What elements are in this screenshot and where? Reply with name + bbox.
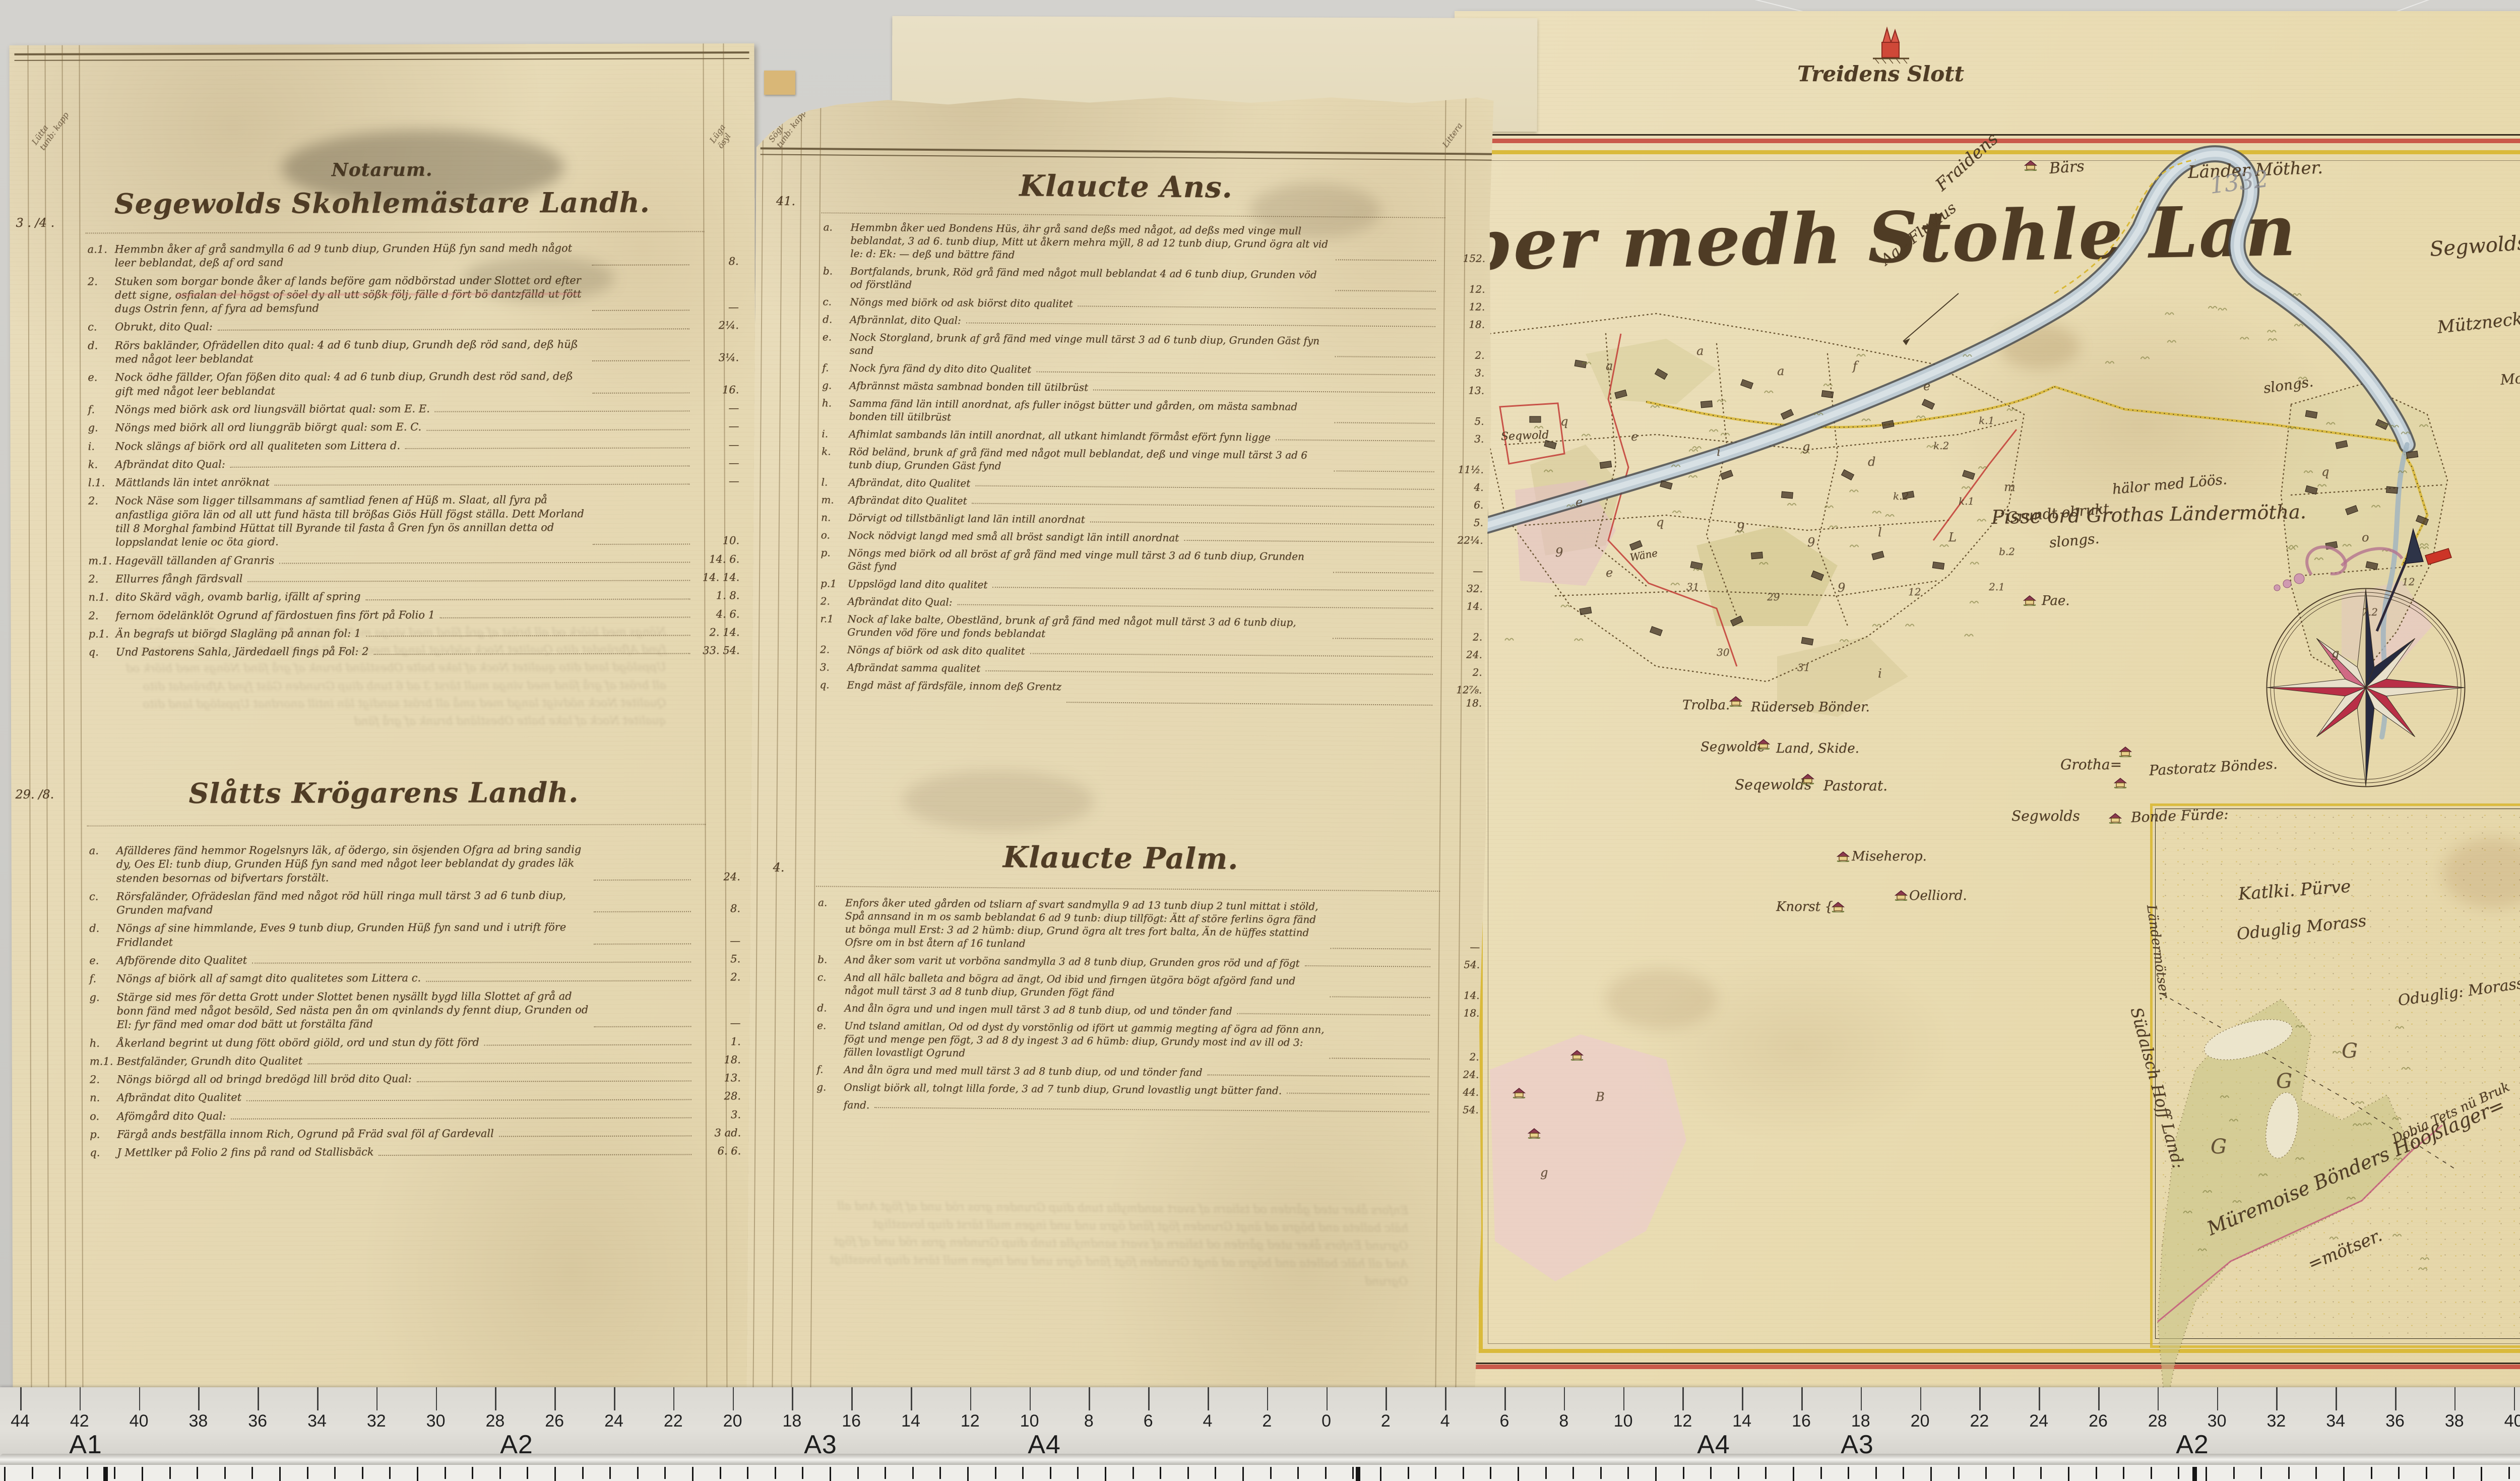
- entry-text: Mättlands län intet anröknat: [115, 476, 270, 490]
- ruler-number: 24: [2029, 1411, 2048, 1431]
- entry-text: Onsligt biörk all, tolngt lilla forde, 3…: [844, 1081, 1282, 1097]
- entry-text: Dörvigt od tillstbänligt land län intill…: [848, 511, 1085, 526]
- map-place-label: Wäne: [1629, 547, 1659, 564]
- ruler-tick: [317, 1387, 319, 1410]
- dotted-leader: [252, 962, 691, 964]
- parcel-letter: i: [1717, 445, 1721, 459]
- entry-text: Obrukt, dito Qual:: [115, 320, 213, 334]
- dotted-leader: [593, 392, 690, 394]
- entry-value: 8.: [696, 902, 743, 916]
- ruler2-tick: [554, 1467, 556, 1481]
- ruler-number: 16: [842, 1411, 861, 1431]
- dotted-leader: [426, 980, 691, 981]
- entry-text: Engd mäst af färdsfäle, innom deß Grentz: [847, 678, 1061, 693]
- ruler-tick: [376, 1387, 378, 1410]
- map-place-label: Aa - Fluvius: [1877, 199, 1960, 269]
- parcel-letter: 31: [1797, 661, 1810, 673]
- ruler2-tick: [2371, 1467, 2372, 1479]
- ruler-number: 40: [2504, 1411, 2520, 1431]
- ruler2-tick: [720, 1467, 721, 1479]
- ruler2-tick: [2068, 1467, 2069, 1481]
- ruler-number: 20: [723, 1411, 742, 1431]
- middle-section1-heading: Klaucte Ans.: [756, 166, 1496, 207]
- ledger-row: g.Onsligt biörk all, tolngt lilla forde,…: [814, 1080, 1482, 1098]
- ruler2-tick: [1738, 1467, 1739, 1479]
- house-icon: [2114, 777, 2127, 788]
- entry-text: Nock Näse som ligger tillsammans af samt…: [115, 493, 588, 549]
- dotted-leader: [985, 670, 1432, 675]
- ink-blot: [902, 770, 1094, 832]
- dotted-leader: [1335, 422, 1435, 424]
- ledger-row: e.Nock Storgland, brunk af grå fänd med …: [821, 330, 1488, 361]
- ruler-number: 26: [545, 1411, 564, 1431]
- entry-text: Än begrafs ut biörgd Slagläng på annan f…: [115, 627, 361, 641]
- entry-letter: f.: [814, 1063, 844, 1076]
- entry-value: 22¼.: [1439, 533, 1486, 547]
- dotted-leader: [426, 429, 689, 430]
- ruler2-tick: [2178, 1467, 2179, 1479]
- ruler-number: 30: [426, 1411, 446, 1431]
- entry-letter: e.: [815, 1019, 844, 1032]
- ruler-tick: [2395, 1387, 2397, 1410]
- ruler2-tick: [1985, 1467, 1987, 1479]
- entry-letter: c.: [821, 295, 850, 308]
- dotted-leader: [972, 503, 1434, 508]
- entry-text: Rörs bakländer, Ofrädellen dito qual: 4 …: [115, 338, 588, 366]
- ruler-tick: [436, 1387, 437, 1410]
- entry-letter: e.: [87, 954, 116, 967]
- house-icon: [1513, 1087, 1526, 1098]
- dotted-leader: [218, 328, 689, 330]
- ruler2-tick: [637, 1467, 639, 1479]
- entry-value: 24.: [1434, 1068, 1482, 1081]
- entry-letter: m.: [819, 493, 848, 506]
- entry-value: 14. 14.: [695, 571, 742, 585]
- entry-text: Färgå ands bestfälla innom Rich, Ogrund …: [117, 1127, 494, 1141]
- dotted-leader: [1030, 653, 1433, 657]
- ruler-tick: [1327, 1387, 1328, 1410]
- ledger-row: a.Enfors åker uted gården od tsliarn af …: [815, 896, 1483, 953]
- dotted-leader: [246, 1099, 691, 1101]
- entry-value: 18.: [1440, 318, 1488, 331]
- ruler-number: 44: [11, 1411, 30, 1431]
- ledger-row: a.Afällderes fänd hemmor Rogelsnyrs läk,…: [87, 842, 743, 885]
- map-place-label: Bärs: [2049, 157, 2085, 177]
- ledger-row: l.Afbrändat, dito Qualitet4.: [819, 475, 1486, 493]
- dotted-leader: [874, 1107, 1429, 1113]
- entry-text: And åln ögra und med mull tärst 3 ad 8 t…: [844, 1063, 1202, 1079]
- entry-letter: n.1.: [86, 591, 115, 604]
- ruler2-thick-tick: [2192, 1467, 2197, 1481]
- ruler-tick: [1920, 1387, 1922, 1410]
- paper-fragment: [764, 71, 795, 95]
- map-place-label: Seqwold: [1501, 429, 1549, 443]
- ruler2-tick: [445, 1467, 446, 1479]
- parcel-letter: k.1: [1959, 495, 1974, 507]
- dotted-leader: [1335, 356, 1435, 358]
- ruler2-tick: [1627, 1467, 1629, 1479]
- ruler-tick: [733, 1387, 734, 1410]
- map-place-label: Monser.: [2500, 367, 2520, 388]
- parcel-letter: a: [1606, 359, 1613, 373]
- house-icon: [2109, 813, 2122, 824]
- entry-value: 2.: [1438, 630, 1485, 644]
- ruler2-tick: [1132, 1467, 1134, 1479]
- map-place-label: Miseherop.: [1852, 849, 1927, 864]
- entry-value: —: [695, 456, 742, 470]
- ruler2-tick: [334, 1467, 336, 1479]
- entry-value: 2.: [1440, 348, 1487, 362]
- entry-value: 18.: [697, 1053, 744, 1067]
- ruler2-tick: [114, 1467, 115, 1479]
- ledger-row: g.Nöngs med biörk all ord liunggräb biör…: [86, 419, 742, 435]
- entry-text: Samma fänd län intill anordnat, afs full…: [849, 397, 1330, 426]
- entry-value: 44.: [1434, 1085, 1482, 1099]
- dotted-leader: [279, 562, 690, 564]
- ruler-tick: [2098, 1387, 2100, 1410]
- ruler-number: 18: [1851, 1411, 1870, 1431]
- ledger-row: n.Afbrändat dito Qualitet28.: [88, 1090, 744, 1105]
- entry-text: Uppslögd land dito qualitet: [848, 577, 988, 591]
- entry-value: 24.: [1438, 648, 1485, 661]
- dotted-leader: [1276, 439, 1434, 441]
- ruler-tick: [80, 1387, 81, 1410]
- parcel-letter: 9: [1807, 535, 1815, 549]
- map-place-label: Pae.: [2042, 593, 2069, 608]
- dotted-leader: [594, 1026, 691, 1027]
- dotted-leader: [1333, 572, 1433, 574]
- ruler-number: 0: [1321, 1411, 1331, 1431]
- ruler-tick: [1445, 1387, 1446, 1410]
- dotted-leader: [366, 635, 690, 637]
- house-icon: [1729, 696, 1742, 707]
- entry-value: —: [695, 300, 742, 315]
- entry-letter: d.: [86, 339, 115, 352]
- entry-text: Afbrändat dito Qual:: [115, 458, 225, 472]
- map-place-label: slongs.: [2049, 530, 2100, 551]
- ruler2-tick: [32, 1467, 33, 1479]
- entry-letter: o.: [819, 528, 848, 541]
- entry-letter: l.1.: [86, 476, 115, 490]
- ruler-tick: [258, 1387, 259, 1410]
- parcel-letter: q: [1560, 414, 1568, 428]
- house-icon: [1832, 901, 1845, 912]
- ruler2-tick: [1077, 1467, 1079, 1479]
- dotted-leader: [1237, 1013, 1430, 1016]
- ledger-row: p.Färgå ands bestfälla innom Rich, Ogrun…: [88, 1126, 744, 1142]
- entry-value: —: [1438, 564, 1486, 578]
- entry-letter: a.1.: [85, 242, 114, 256]
- entry-letter: 2.: [88, 1073, 117, 1087]
- entry-letter: b.: [815, 953, 845, 966]
- dotted-leader: [417, 1081, 691, 1082]
- entry-text: fand.: [844, 1098, 870, 1112]
- entry-letter: f.: [820, 361, 849, 374]
- parcel-letter: b.2: [1999, 545, 2015, 558]
- ruler-number: 34: [307, 1411, 327, 1431]
- entry-value: 54.: [1435, 958, 1483, 971]
- map-place-label: Seqewolds: [1735, 776, 1811, 793]
- entry-text: Afällderes fänd hemmor Rogelsnyrs läk, a…: [116, 843, 589, 885]
- entry-letter: r.1: [818, 612, 847, 625]
- ledger-row: a.Hemmbn åker ued Bondens Hüs, ähr grå s…: [821, 220, 1489, 265]
- ruler-tick: [1861, 1387, 1862, 1410]
- entry-text: Afbrändat samma qualitet: [847, 661, 981, 675]
- ruler2-tick: [1352, 1467, 1354, 1479]
- map-place-label: Oelliord.: [1909, 888, 1967, 903]
- ruler-number: 2: [1381, 1411, 1391, 1431]
- ruler2-tick: [499, 1467, 501, 1479]
- ruler-tick: [1564, 1387, 1565, 1410]
- entry-text: Nöngs med biörk od all bröst af grå fänd…: [848, 546, 1329, 576]
- secondary-ruler: [0, 1465, 2520, 1481]
- ledger-row: m.1.Hageväll tällanden af Granris14. 6.: [86, 552, 742, 568]
- entry-text: dito Skärd vägh, ovamb barlig, ifällt af…: [115, 590, 360, 604]
- ledger-row: n.Dörvigt od tillstbänligt land län inti…: [819, 511, 1486, 529]
- map-place-label: Segwolde: [1700, 739, 1765, 755]
- entry-text: Enfors åker uted gården od tsliarn af sv…: [845, 896, 1326, 952]
- entry-letter: 2.: [86, 275, 115, 288]
- ledger-row: 2.Nöngs af biörk od ask dito qualitet24.: [818, 643, 1485, 661]
- entry-text: Nöngs af biörk od ask dito qualitet: [847, 643, 1025, 658]
- dotted-leader: [1093, 390, 1435, 393]
- entry-letter: e.: [86, 371, 115, 385]
- entry-value: —: [695, 401, 742, 415]
- entry-text: Und tsland amitlan, Od od dyst dy vorstö…: [844, 1019, 1325, 1062]
- ruler2-tick: [1683, 1467, 1684, 1479]
- ledger-row: c.Obrukt, dito Qual:2¼.: [86, 319, 742, 335]
- entry-value: —: [695, 438, 742, 452]
- left-section2-heading: Slåtts Krögarens Landh.: [11, 775, 756, 810]
- ruler-number: 10: [1614, 1411, 1633, 1431]
- entry-value: 54.: [1434, 1103, 1482, 1117]
- ruler2-tick: [2040, 1467, 2042, 1479]
- ledger-row: g.Afbrännst mästa sambnad bonden till üt…: [820, 379, 1487, 397]
- ledger-row: q.Engd mäst af färdsfäle, innom deß Gren…: [817, 678, 1485, 709]
- entry-text: Nöngs med biörk od ask biörst dito quali…: [850, 295, 1073, 310]
- entry-letter: g.: [86, 421, 115, 435]
- entry-value: 2¼.: [695, 319, 742, 333]
- ruler-number: 22: [664, 1411, 683, 1431]
- entry-value: 12.: [1440, 300, 1488, 314]
- ruler-tick: [1623, 1387, 1625, 1410]
- entry-letter: g.: [820, 379, 849, 392]
- ledger-entries-3: a.Hemmbn åker ued Bondens Hüs, ähr grå s…: [817, 220, 1489, 714]
- ledger-row: c.Nöngs med biörk od ask biörst dito qua…: [821, 295, 1488, 313]
- ruler-tick: [1385, 1387, 1387, 1410]
- ruler-number: 12: [961, 1411, 980, 1431]
- entry-value: 5.: [1439, 516, 1486, 529]
- ruler-number: 30: [2208, 1411, 2227, 1431]
- ruler-number: 28: [2148, 1411, 2167, 1431]
- ruler-number: 6: [1144, 1411, 1153, 1431]
- entry-letter: d.: [87, 922, 116, 936]
- entry-value: 12⅞. 18.: [1437, 683, 1485, 710]
- dotted-leader: [405, 447, 690, 449]
- entry-letter: q.: [817, 678, 847, 691]
- house-icon: [2023, 595, 2036, 606]
- ruler2-thick-tick: [103, 1467, 108, 1481]
- ruler-tick: [673, 1387, 675, 1410]
- ruler2-tick: [1655, 1467, 1657, 1481]
- ruler-tick: [792, 1387, 793, 1410]
- map-place-label: Südalsch Hoff Land:: [2127, 1005, 2188, 1170]
- map-place-label: Pastorat.: [1823, 777, 1887, 794]
- ledger-row: f.And åln ögra und med mull tärst 3 ad 8…: [814, 1063, 1482, 1081]
- ruler-number: 6: [1500, 1411, 1509, 1431]
- entry-text: Afbförende dito Qualitet: [116, 954, 247, 968]
- parcel-letter: 12: [1908, 586, 1921, 598]
- ruler2-tick: [857, 1467, 859, 1479]
- parcel-letter: g: [2332, 646, 2339, 660]
- ruler2-tick: [279, 1467, 281, 1481]
- entry-value: 28.: [697, 1090, 744, 1104]
- dotted-leader: [992, 587, 1433, 591]
- ledger-row: d.And åln ögra und und ingen mull tärst …: [815, 1001, 1482, 1019]
- ruler2-tick: [802, 1467, 803, 1479]
- ledger-row: 2.Nöngs biörgd all od bringd bredögd lil…: [88, 1071, 744, 1087]
- map-place-label: Land, Skide.: [1776, 741, 1859, 756]
- entry-value: —: [1435, 940, 1483, 954]
- ruler2-tick: [224, 1467, 226, 1479]
- map-place-label: Rüderseb Bönder.: [1751, 700, 1870, 715]
- parcel-letter: 12: [2402, 576, 2415, 588]
- ruler2-tick: [1710, 1467, 1712, 1479]
- ruler2-tick: [1930, 1467, 1932, 1481]
- ledger-row: i.Nock slängs af biörk ord all qualitete…: [86, 438, 742, 454]
- ruler-tick: [851, 1387, 853, 1410]
- ruler-tick: [2336, 1387, 2337, 1410]
- map-place-label: Segwolds: [2011, 808, 2080, 824]
- entry-text: And åker som varit ut vorböna sandmylla …: [845, 953, 1300, 970]
- entry-letter: m.1.: [86, 554, 115, 568]
- dotted-leader: [1078, 305, 1436, 310]
- entry-letter: 2.: [86, 572, 115, 586]
- entry-value: 3 ad.: [697, 1126, 744, 1140]
- dotted-leader: [366, 598, 690, 600]
- parcel-letter: g: [1802, 440, 1810, 454]
- entry-text: Afbrändat dito Qual:: [848, 595, 953, 609]
- ledger-row: 2.Afbrändat dito Qual:14.: [818, 594, 1486, 612]
- entry-value: 5.: [696, 952, 743, 966]
- map-place-label: Knorst {: [1776, 899, 1833, 914]
- ruler2-tick: [1765, 1467, 1767, 1479]
- ledger-row: e.Und tsland amitlan, Od od dyst dy vors…: [815, 1019, 1483, 1063]
- ruler2-tick: [2508, 1467, 2510, 1479]
- dotted-leader: [594, 943, 691, 945]
- parcel-letter: a: [1777, 364, 1784, 378]
- entry-letter: p.1: [818, 577, 848, 590]
- ledger-row: f.Nöngs med biörk ask ord liungsväll biö…: [86, 401, 742, 417]
- ledger-row: f.Nock fyra fänd dy dito dito Qualitet3.: [820, 361, 1487, 379]
- ruler2-tick: [2013, 1467, 2014, 1479]
- ledger-row: k.Afbrändat dito Qual:—: [86, 456, 742, 472]
- dotted-leader: [1184, 540, 1433, 543]
- map-place-label: Katlki. Pürve: [2238, 876, 2352, 904]
- ruler-number: 40: [130, 1411, 149, 1431]
- ledger-row: o.Afömgård dito Qual:3.: [88, 1108, 744, 1124]
- notarum-heading: Notarum.: [10, 158, 754, 181]
- entry-text: Afhimlat sambands län intill anordnat, a…: [849, 427, 1271, 444]
- ruler-tick: [1682, 1387, 1684, 1410]
- parcel-letter: a: [1696, 344, 1704, 358]
- left-ledger-page: Lütta tunb: kapp Lüga ösyl Notarum. Sege…: [9, 43, 758, 1410]
- entry-letter: g.: [87, 991, 116, 1004]
- parcel-letter: 9: [1737, 520, 1744, 534]
- ruler2-tick: [142, 1467, 143, 1481]
- ruler-tick: [1742, 1387, 1743, 1410]
- entry-value: 4.: [1439, 480, 1486, 494]
- ruler-tick: [970, 1387, 972, 1410]
- ink-bleedthrough: Enfors åker uted gården od tsliarn af sv…: [828, 1197, 1409, 1383]
- ledger-row: l.1.Mättlands län intet anröknat—: [86, 474, 742, 490]
- ruler2-tick: [307, 1467, 308, 1479]
- folio-note: 3 . /4 .: [16, 216, 54, 230]
- entry-letter: q.: [87, 646, 116, 659]
- house-icon: [2119, 746, 2132, 757]
- entry-value: 3¼.: [695, 351, 742, 365]
- ruler-number: 14: [1732, 1411, 1751, 1431]
- ruler2-tick: [1572, 1467, 1574, 1479]
- entry-value: 6.: [1439, 498, 1486, 512]
- ledger-row: q.Und Pastorens Sahla, Järdedaell fings …: [87, 644, 743, 659]
- dotted-leader: [1066, 702, 1432, 706]
- parcel-letter: 9: [1555, 545, 1563, 560]
- ledger-row: h.Åkerland begrint ut dung fött obörd gi…: [88, 1035, 744, 1051]
- entry-value: 2.: [696, 971, 743, 985]
- ruler2-tick: [2151, 1467, 2152, 1479]
- entry-text: Nöngs af biörk all af samgt dito qualite…: [116, 971, 421, 986]
- entry-letter: b.: [821, 264, 850, 277]
- ledger-row: d.Nöngs af sine himmlande, Eves 9 tunb d…: [87, 920, 743, 950]
- entry-text: Bortfalands, brunk, Röd grå fänd med någ…: [850, 265, 1331, 294]
- parcel-letter: 31: [1686, 581, 1699, 593]
- ruler2-tick: [1022, 1467, 1024, 1479]
- ruler2-tick: [885, 1467, 886, 1479]
- entry-text: Nöngs med biörk all ord liunggräb biörgt…: [115, 420, 421, 435]
- ruler2-tick: [1848, 1467, 1849, 1479]
- entry-letter: c.: [815, 970, 845, 983]
- entry-letter: p.: [88, 1128, 117, 1141]
- ledger-row: e.Nock ödhe fällder, Ofan fößen dito qua…: [86, 369, 742, 399]
- ledger-row: g.Stärge sid mes för detta Grott under S…: [87, 989, 743, 1032]
- dotted-leader: [484, 1044, 691, 1045]
- ruler-tick: [139, 1387, 141, 1410]
- entry-value: —: [695, 419, 742, 434]
- ruler2-tick: [2343, 1467, 2345, 1481]
- ledger-row: c.And all hälc balleta and bögra ad ängt…: [815, 970, 1483, 1002]
- ruler2-tick: [472, 1467, 473, 1479]
- ruler2-tick: [2288, 1467, 2290, 1479]
- parcel-letter: B: [1596, 1090, 1605, 1104]
- ruler2-tick: [1297, 1467, 1299, 1479]
- entry-text: Nöngs af sine himmlande, Eves 9 tunb diu…: [116, 920, 589, 949]
- ruler2-tick: [1270, 1467, 1272, 1479]
- house-icon: [1801, 773, 1814, 784]
- ledger-row: c.Rörsfaländer, Ofrädeslan fänd med någo…: [87, 888, 743, 917]
- house-icon: [2024, 160, 2037, 171]
- ledger-row: 2.Ellurres fångh färdsvall14. 14.: [86, 571, 742, 586]
- entry-text: J Mettlker på Folio 2 fins på rand od St…: [117, 1145, 373, 1160]
- entry-text: Afömgård dito Qual:: [117, 1109, 226, 1124]
- entry-letter: p.1.: [86, 627, 115, 641]
- ruler2-tick: [2123, 1467, 2124, 1479]
- entry-text: Bestfaländer, Grundh dito Qualitet: [117, 1054, 303, 1068]
- map-place-label: Oduglig Morass: [2236, 911, 2367, 944]
- entry-letter: l.: [819, 475, 848, 488]
- ruler2-tick: [1408, 1467, 1409, 1479]
- entry-text: Ellurres fångh färdsvall: [115, 572, 242, 586]
